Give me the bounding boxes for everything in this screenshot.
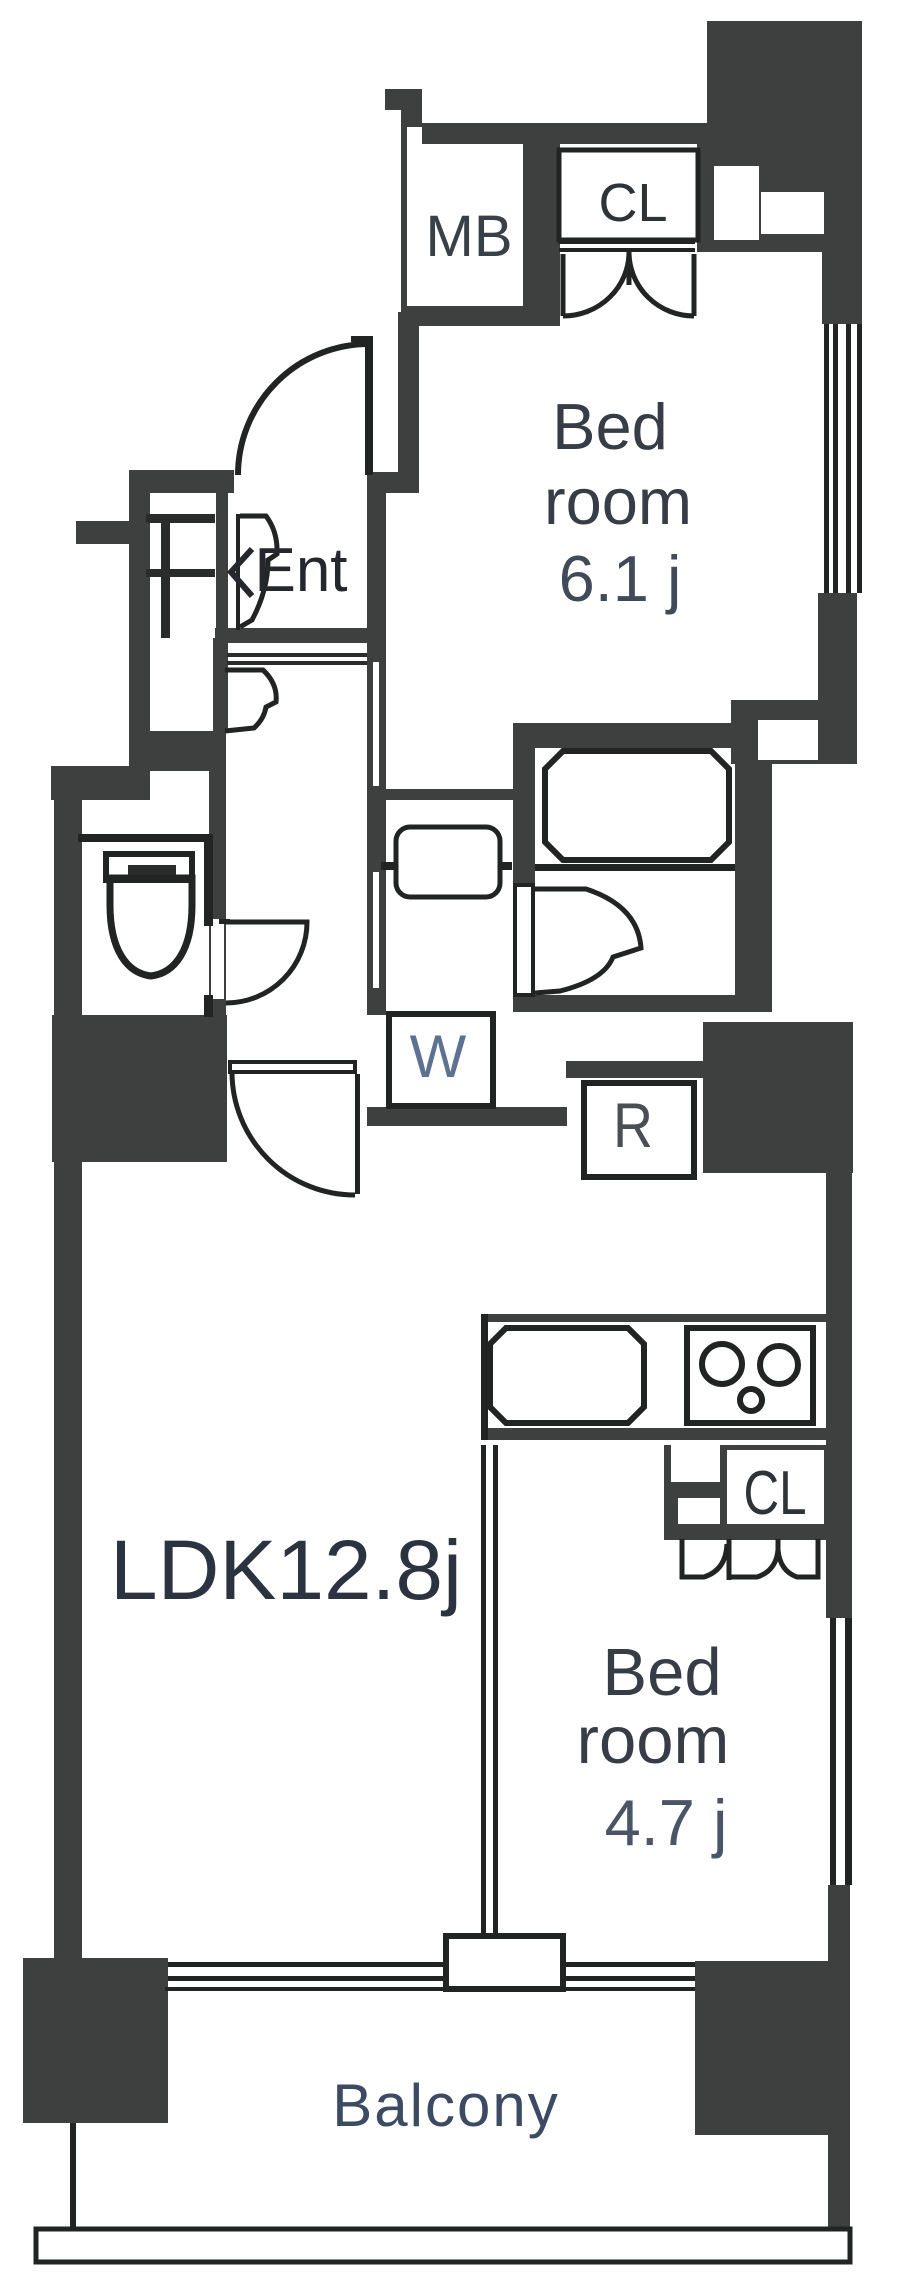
svg-text:LDK12.8j: LDK12.8j <box>110 1523 462 1617</box>
svg-text:6.1 j: 6.1 j <box>559 542 682 615</box>
svg-text:Ent: Ent <box>254 536 347 605</box>
svg-text:R: R <box>613 1091 653 1161</box>
svg-text:W: W <box>410 1023 467 1090</box>
svg-text:CL: CL <box>744 1459 807 1528</box>
svg-text:room: room <box>544 465 692 538</box>
svg-text:Balcony: Balcony <box>332 2072 559 2139</box>
svg-text:Bed: Bed <box>602 1635 721 1710</box>
svg-text:4.7 j: 4.7 j <box>605 1786 728 1859</box>
svg-text:room: room <box>577 1703 730 1778</box>
svg-text:MB: MB <box>426 204 513 269</box>
svg-text:Bed: Bed <box>552 390 668 463</box>
svg-text:CL: CL <box>598 173 667 233</box>
